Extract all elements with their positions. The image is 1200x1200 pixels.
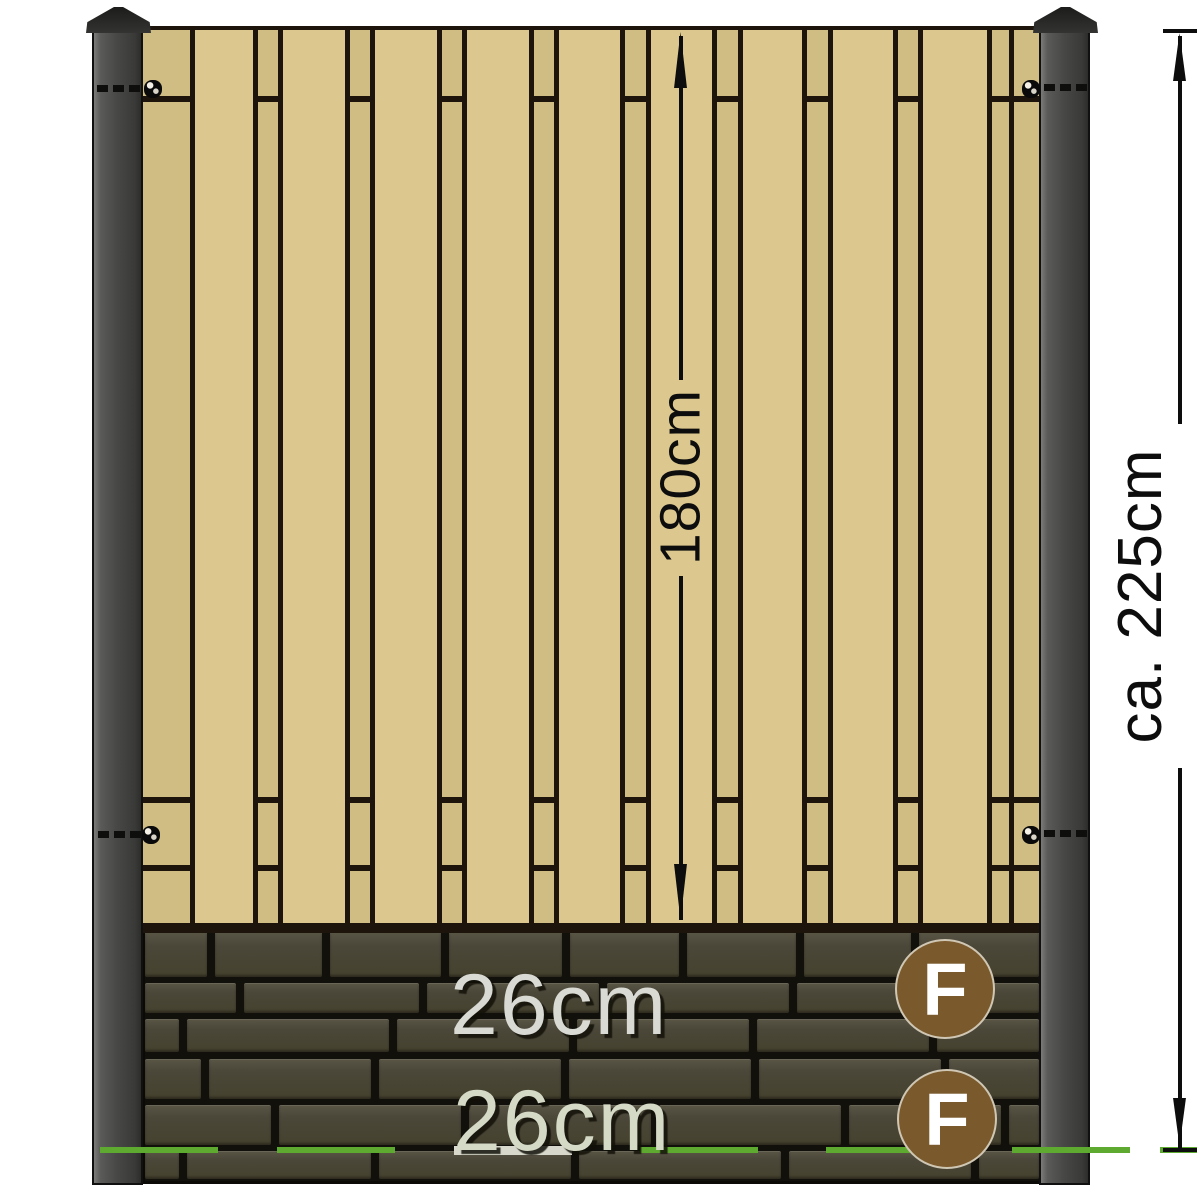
bolt-dash <box>1076 84 1087 91</box>
concrete-post-left <box>92 30 143 1185</box>
concrete-brick <box>804 932 911 977</box>
concrete-brick <box>209 1059 371 1099</box>
bolt-dash <box>1076 830 1087 837</box>
f-badge-letter: F <box>924 1077 969 1162</box>
post-cap-icon <box>86 7 151 33</box>
concrete-brick <box>244 983 419 1013</box>
dimension-tick <box>1163 29 1197 33</box>
screw-icon <box>1022 826 1040 844</box>
f-badge: F <box>895 939 995 1039</box>
plate1-height-label: 26cm <box>450 962 668 1048</box>
arrow-up-icon <box>1171 33 1188 81</box>
concrete-brick <box>757 1019 929 1052</box>
concrete-brick <box>330 932 441 977</box>
concrete-brick <box>659 1105 841 1145</box>
bolt-dash <box>129 85 140 92</box>
concrete-brick <box>979 1151 1039 1179</box>
bolt-dash <box>97 85 108 92</box>
panel-height-label: 180cm <box>653 389 710 565</box>
concrete-brick <box>145 932 207 977</box>
dimension-tick <box>1163 1148 1197 1152</box>
bolt-dash <box>114 831 125 838</box>
total-height-label: ca. 225cm <box>1110 448 1172 743</box>
concrete-brick <box>145 1105 271 1145</box>
ground-line-dash <box>100 1147 218 1153</box>
f-badge: F <box>897 1069 997 1169</box>
concrete-brick <box>187 1151 371 1179</box>
wood-fence-panel <box>143 26 1040 933</box>
bolt-dash <box>98 831 109 838</box>
concrete-brick <box>145 1151 179 1179</box>
fence-slat <box>828 30 898 923</box>
screw-icon <box>1022 80 1040 98</box>
ground-line-dash <box>1012 1147 1130 1153</box>
concrete-brick <box>215 932 322 977</box>
fence-slat <box>738 30 807 923</box>
concrete-brick <box>145 1019 179 1052</box>
screw-icon <box>144 80 162 98</box>
concrete-post-right <box>1039 30 1090 1185</box>
slat-edge-line <box>1009 30 1014 923</box>
concrete-brick <box>145 1059 201 1099</box>
fence-dimension-diagram: 26cm 26cm 180cm ca. 225cm F F <box>0 0 1200 1200</box>
bolt-dash <box>1060 830 1071 837</box>
concrete-brick <box>187 1019 389 1052</box>
fence-slat <box>462 30 534 923</box>
concrete-brick <box>279 1105 461 1145</box>
plate2-height-label: 26cm <box>453 1078 671 1164</box>
dimension-line <box>1178 768 1182 1148</box>
concrete-brick <box>1009 1105 1039 1145</box>
fence-slat <box>278 30 350 923</box>
arrow-down-icon <box>1171 1098 1188 1146</box>
bolt-dash <box>130 831 141 838</box>
bolt-dash <box>113 85 124 92</box>
f-badge-letter: F <box>922 947 967 1032</box>
concrete-brick <box>687 932 796 977</box>
bolt-dash <box>1044 84 1055 91</box>
post-cap-icon <box>1033 7 1098 33</box>
bolt-dash <box>1044 830 1055 837</box>
screw-icon <box>142 826 160 844</box>
bolt-dash <box>1060 84 1071 91</box>
dimension-line <box>1178 36 1182 424</box>
fence-slat <box>190 30 258 923</box>
fence-slat <box>918 30 992 923</box>
fence-slat <box>554 30 625 923</box>
ground-line-dash <box>277 1147 395 1153</box>
fence-slat <box>370 30 442 923</box>
concrete-brick <box>145 983 236 1013</box>
